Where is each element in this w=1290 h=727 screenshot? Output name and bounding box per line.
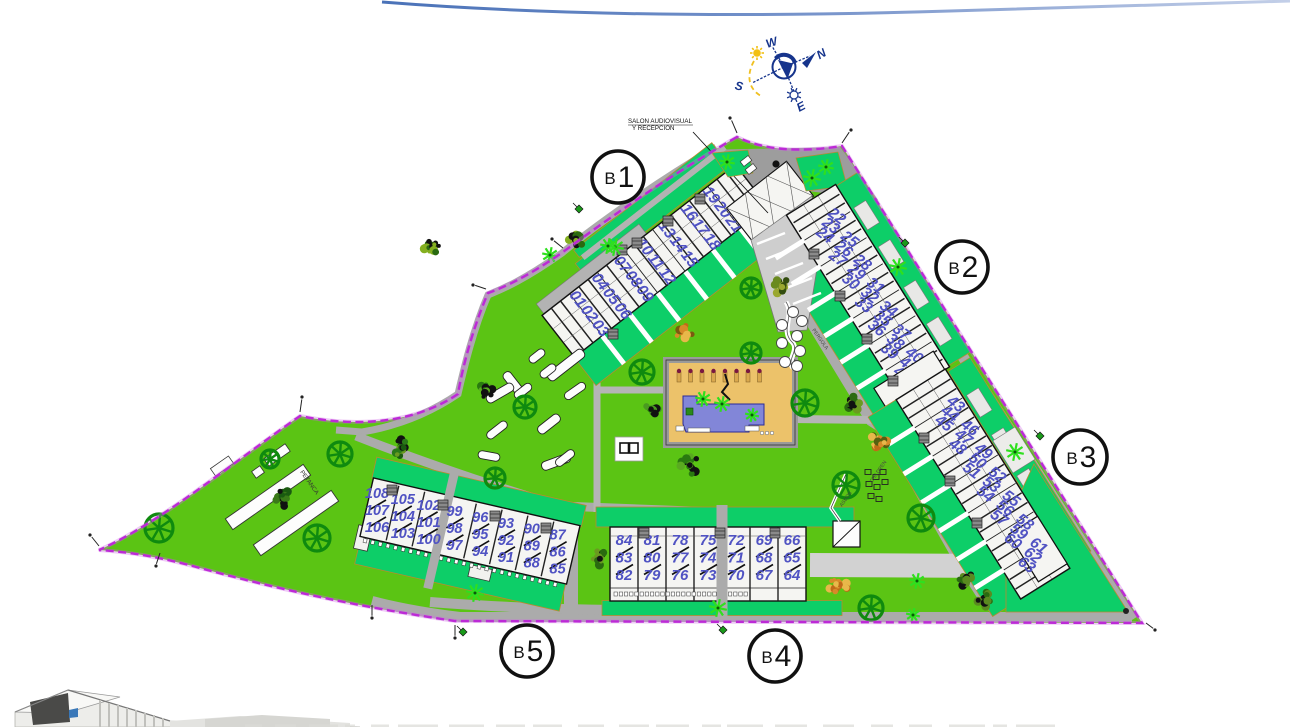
svg-text:3: 3: [1080, 441, 1097, 474]
svg-text:86: 86: [550, 545, 567, 561]
svg-text:106: 106: [365, 520, 390, 536]
svg-text:73: 73: [700, 567, 717, 584]
svg-text:B: B: [513, 643, 524, 662]
svg-text:107: 107: [365, 503, 390, 519]
svg-text:90: 90: [524, 522, 540, 538]
svg-text:B: B: [1066, 449, 1077, 468]
svg-text:79: 79: [644, 567, 661, 584]
svg-text:83: 83: [616, 550, 633, 567]
svg-text:68: 68: [756, 550, 773, 567]
svg-text:1: 1: [618, 161, 635, 194]
svg-text:82: 82: [616, 567, 633, 584]
svg-text:66: 66: [784, 532, 801, 549]
svg-text:76: 76: [672, 567, 689, 584]
svg-text:71: 71: [728, 550, 745, 567]
svg-text:87: 87: [550, 528, 567, 544]
svg-text:B: B: [948, 259, 959, 278]
svg-text:B: B: [761, 648, 772, 667]
svg-text:103: 103: [391, 526, 415, 542]
svg-text:5: 5: [527, 635, 544, 668]
svg-text:80: 80: [644, 550, 661, 567]
svg-text:65: 65: [784, 550, 801, 567]
svg-text:94: 94: [472, 544, 488, 560]
svg-text:98: 98: [446, 521, 463, 537]
svg-text:88: 88: [524, 556, 541, 572]
svg-text:100: 100: [416, 532, 440, 548]
svg-text:4: 4: [775, 640, 792, 673]
svg-text:72: 72: [728, 532, 745, 549]
svg-text:67: 67: [756, 567, 773, 584]
svg-text:70: 70: [728, 567, 745, 584]
svg-text:108: 108: [365, 486, 390, 502]
svg-text:91: 91: [498, 550, 514, 566]
svg-text:85: 85: [550, 562, 567, 578]
svg-text:92: 92: [498, 533, 514, 549]
svg-text:96: 96: [472, 510, 489, 526]
svg-text:95: 95: [472, 527, 489, 543]
svg-text:2: 2: [962, 251, 979, 284]
svg-text:97: 97: [446, 538, 463, 554]
svg-text:84: 84: [616, 532, 633, 549]
svg-text:93: 93: [498, 516, 514, 532]
svg-text:Y RECEPCION: Y RECEPCION: [632, 125, 675, 132]
svg-text:75: 75: [700, 532, 717, 549]
svg-text:SALON AUDIOVISUAL: SALON AUDIOVISUAL: [628, 118, 693, 125]
svg-text:74: 74: [700, 550, 717, 567]
svg-text:64: 64: [784, 567, 801, 584]
svg-text:89: 89: [524, 539, 540, 555]
svg-text:99: 99: [446, 504, 462, 520]
svg-text:78: 78: [672, 532, 689, 549]
svg-text:B: B: [604, 169, 615, 188]
svg-text:77: 77: [672, 550, 689, 567]
